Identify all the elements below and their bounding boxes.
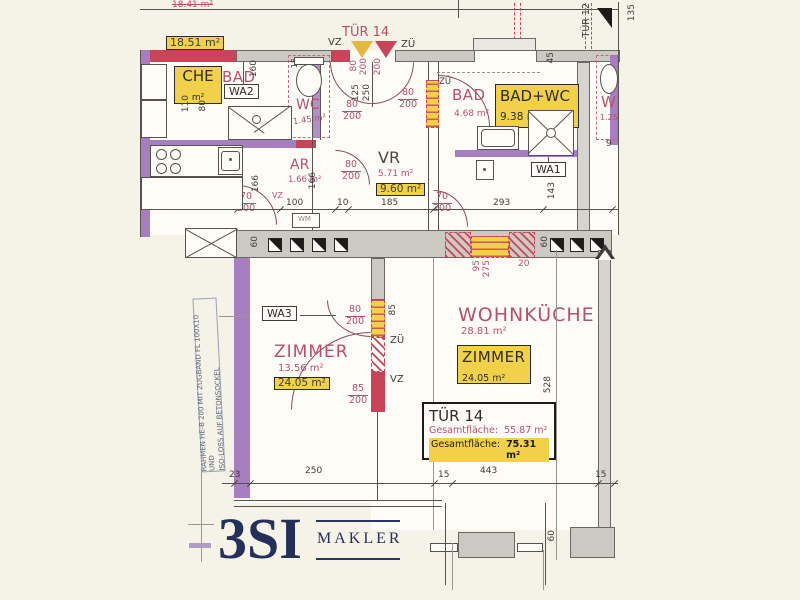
construction-note: RAHMEN HE-B 200 MIT ZUGBAND FL 100X10 UN… (192, 297, 225, 472)
info-row2-label: Gesamtfläche: (431, 439, 500, 461)
door-size-80-200: 80200 (341, 160, 361, 183)
dim-20: 20 (518, 260, 529, 269)
wall-line (545, 503, 546, 585)
dim-15-a: 15 (438, 471, 449, 480)
dim-200-door2: 200 (374, 58, 383, 75)
wa3-leader (300, 315, 336, 316)
zimmer-right-area: 24.05 m² (462, 373, 505, 384)
door-size-80-200: 80200 (345, 305, 365, 328)
wa2-leader (243, 62, 244, 84)
wa3-box: WA3 (262, 306, 297, 321)
dim-275: 275 (483, 260, 492, 277)
small-purple-mark (189, 543, 211, 548)
dim-85: 85 (389, 304, 398, 315)
door-size-80-200: 80200 (342, 100, 362, 123)
wohnkueche-name: WOHNKÜCHE (458, 306, 595, 326)
toilet-right (600, 64, 618, 94)
section-marker-icon (550, 238, 564, 252)
wall-segment (371, 258, 385, 300)
door-size-80-200: 80200 (398, 88, 418, 111)
dim-9-partial: 9 (606, 140, 612, 149)
frac-den: 200 (348, 395, 368, 407)
wall-segment (395, 50, 475, 62)
dim-166-a: 166 (252, 175, 261, 192)
info-row-2: Gesamtfläche: 75.31 m² (429, 438, 549, 462)
dim-area-new: 18.51 m² (166, 36, 224, 50)
ref-line (433, 258, 434, 530)
dim-293: 293 (493, 199, 510, 208)
wa3-label: WA3 (267, 307, 292, 320)
drain-icon (252, 115, 261, 124)
frac-den: 200 (398, 99, 418, 111)
basin-inner (481, 129, 515, 147)
door-triangle-red-icon (375, 41, 397, 58)
zimmer-right-box: ZIMMER 24.05 m² (457, 345, 531, 384)
dim-60-bottom: 60 (548, 530, 557, 541)
wa2-label: WA2 (229, 85, 254, 98)
dim-line-528 (556, 250, 557, 560)
section-marker-icon (570, 238, 584, 252)
dim-143: 143 (548, 182, 557, 199)
dim-60-band-right: 60 (541, 236, 550, 247)
sink-basin (221, 151, 240, 171)
stove-burner-icon (156, 163, 167, 174)
frac-num: 80 (346, 100, 358, 111)
wc-right-name: W (601, 95, 616, 111)
badwc-dashed-line (437, 72, 540, 73)
door-triangle-yellow-icon (351, 41, 373, 58)
faucet-dot (229, 158, 232, 161)
section-marker-icon (290, 238, 304, 252)
wall-hatch (509, 232, 535, 258)
small-line (188, 524, 214, 525)
sink-dot (483, 168, 486, 171)
frac-num: 85 (352, 384, 364, 395)
wall-segment (570, 527, 615, 558)
bad-right-name: BAD (452, 88, 486, 104)
vr-name: VR (378, 150, 400, 167)
wall-line (234, 500, 442, 501)
dim-95: 95 (473, 260, 482, 271)
dim-185: 185 (381, 199, 398, 208)
fridge (141, 64, 167, 100)
info-row-1: Gesamtfläche: 55.87 m² (429, 425, 549, 436)
door-yellow-95-275 (471, 236, 509, 258)
dim-60-band-left: 60 (251, 236, 260, 247)
stove-burner-icon (156, 149, 167, 160)
door-size-70-200: 70200 (432, 192, 452, 215)
ref-line (543, 550, 544, 590)
wall-hatch (371, 337, 385, 372)
zu-label-lower: ZÜ (390, 336, 404, 347)
wall-segment (140, 50, 236, 62)
logo-line-bottom (316, 558, 400, 560)
zimmer-left-name: ZIMMER (274, 344, 349, 362)
dim-443: 443 (480, 467, 497, 476)
note-leader-v (201, 470, 202, 562)
badwc-name: BAD+WC (500, 87, 574, 105)
dim-15-b: 15 (595, 471, 606, 480)
info-box: TÜR 14 Gesamtfläche: 55.87 m² Gesamtfläc… (422, 402, 556, 460)
dim-166-b: 166 (309, 172, 318, 189)
ar-name: AR (290, 158, 309, 173)
door-tur12-label: TÜR 12 (582, 3, 592, 37)
stove-burner-icon (170, 149, 181, 160)
section-marker-icon (268, 238, 282, 252)
logo-makler: MAKLER (317, 530, 403, 548)
wall-right-lower (598, 250, 611, 528)
wall-line (618, 2, 619, 235)
frac-den: 200 (342, 111, 362, 123)
info-title: TÜR 14 (429, 407, 549, 425)
wm-label: WM (298, 216, 311, 223)
vz-label-top: VZ (328, 38, 342, 49)
wall-line (377, 412, 378, 500)
wall-line (445, 503, 446, 585)
toilet-tank (294, 57, 324, 65)
vr-area: 5.71 m² (378, 170, 413, 179)
vr-area-total: 9.60 m² (376, 183, 425, 196)
note-leader (219, 316, 249, 317)
logo-3si: 3SI (218, 510, 302, 568)
frac-num: 80 (402, 88, 414, 99)
wall-zimmer-left (234, 258, 250, 498)
wall-door-vz (332, 50, 350, 62)
wa2-box: WA2 (224, 84, 259, 99)
toilet-left (296, 64, 322, 97)
info-row2-value: 75.31 m² (506, 439, 547, 461)
vz-label-lower: VZ (390, 375, 404, 386)
dim-45: 45 (547, 52, 556, 63)
dim-tur12-width: 135 (628, 4, 637, 21)
section-marker-icon (334, 238, 348, 252)
ref-line (452, 543, 453, 590)
zu-label-top: ZÜ (401, 40, 415, 51)
dim-80-door: 80 (350, 60, 359, 71)
dim-area-old: 18.41 m² (172, 1, 213, 10)
frac-num: 70 (436, 192, 448, 203)
arrow-up-inner (598, 250, 612, 260)
ar-vz-label: VZ (272, 192, 283, 200)
door-size-85-200: 85200 (348, 384, 368, 407)
zimmer-right-name: ZIMMER (462, 348, 526, 366)
dim-250: 250 (305, 467, 322, 476)
door-yellow-80-200 (371, 300, 385, 337)
frac-num: 80 (349, 305, 361, 316)
zimmer-left-area-total: 24.05 m² (274, 377, 330, 390)
info-row1-label: Gesamtfläche: (429, 425, 498, 436)
dim-100: 100 (286, 199, 303, 208)
zimmer-left-area: 13.56 m² (278, 364, 324, 375)
dim-200-door: 200 (360, 58, 369, 75)
window (517, 543, 543, 552)
dim-528: 528 (544, 376, 553, 393)
frac-num: 80 (345, 160, 357, 171)
wc-left-name: WC (296, 98, 320, 113)
wa1-leader (548, 157, 549, 163)
wc-right-area: 1.25 (600, 114, 618, 122)
section-marker-icon (312, 238, 326, 252)
logo-line-top (316, 520, 400, 522)
dim-arrow-line (458, 0, 459, 18)
dim-160-left: 160 (250, 60, 259, 77)
dim-80: 80 (199, 100, 208, 111)
floorplan-scan: 18.41 m² 18.51 m² 135 TÜR 12 TÜR 14 VZ Z… (0, 0, 800, 600)
wall-segment (458, 532, 515, 558)
cabinet (141, 100, 167, 138)
frac-den: 200 (345, 316, 365, 328)
dim-10: 10 (337, 199, 348, 208)
door-tur14-label: TÜR 14 (342, 26, 389, 40)
dim-250-door: 250 (363, 84, 372, 101)
kueche-name: CHE (178, 67, 218, 85)
frac-den: 200 (341, 171, 361, 183)
wa1-box: WA1 (531, 162, 566, 177)
door-tur12-triangle-icon (597, 8, 612, 28)
dim-line-bottom (222, 483, 618, 484)
cabinet-row (141, 177, 243, 210)
wohnkueche-area: 28.81 m² (461, 327, 507, 338)
stove-burner-icon (170, 163, 181, 174)
wa1-label: WA1 (536, 163, 561, 176)
info-row1-value: 55.87 m² (504, 425, 547, 436)
window (430, 543, 458, 552)
bad-right-area: 4.68 m² (454, 110, 489, 119)
wall-notch (473, 38, 536, 51)
shower-drain-icon (546, 128, 556, 138)
dim-23: 23 (229, 471, 240, 480)
dim-110: 110 (182, 95, 191, 112)
room-backing-wohnkueche (371, 258, 611, 530)
wall-door-vz-lower (371, 372, 385, 412)
zu-label-mid: ZÜ (439, 78, 451, 87)
wall-hatch (445, 232, 471, 258)
wall-band-accent (296, 140, 316, 148)
